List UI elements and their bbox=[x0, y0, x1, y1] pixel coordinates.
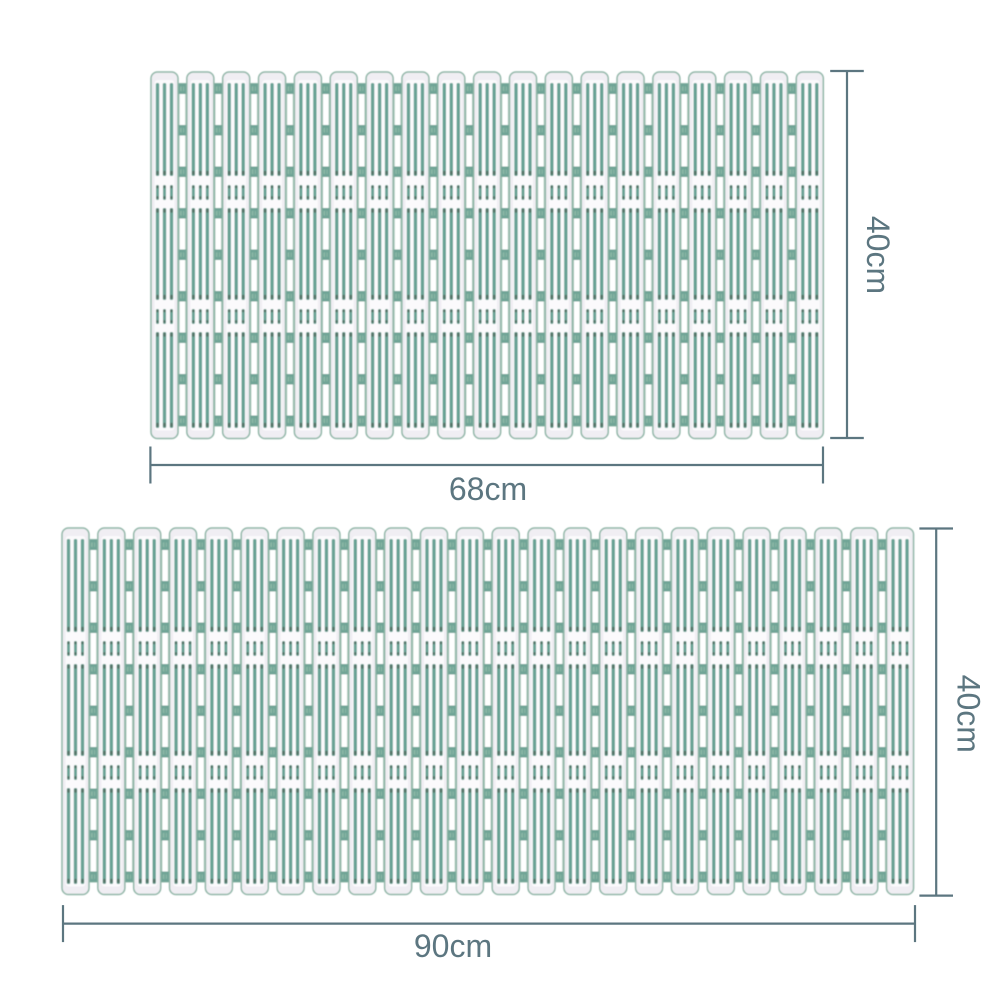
svg-text:68cm: 68cm bbox=[449, 471, 527, 507]
svg-text:40cm: 40cm bbox=[860, 216, 896, 294]
svg-text:90cm: 90cm bbox=[414, 928, 492, 964]
svg-text:40cm: 40cm bbox=[951, 675, 987, 753]
